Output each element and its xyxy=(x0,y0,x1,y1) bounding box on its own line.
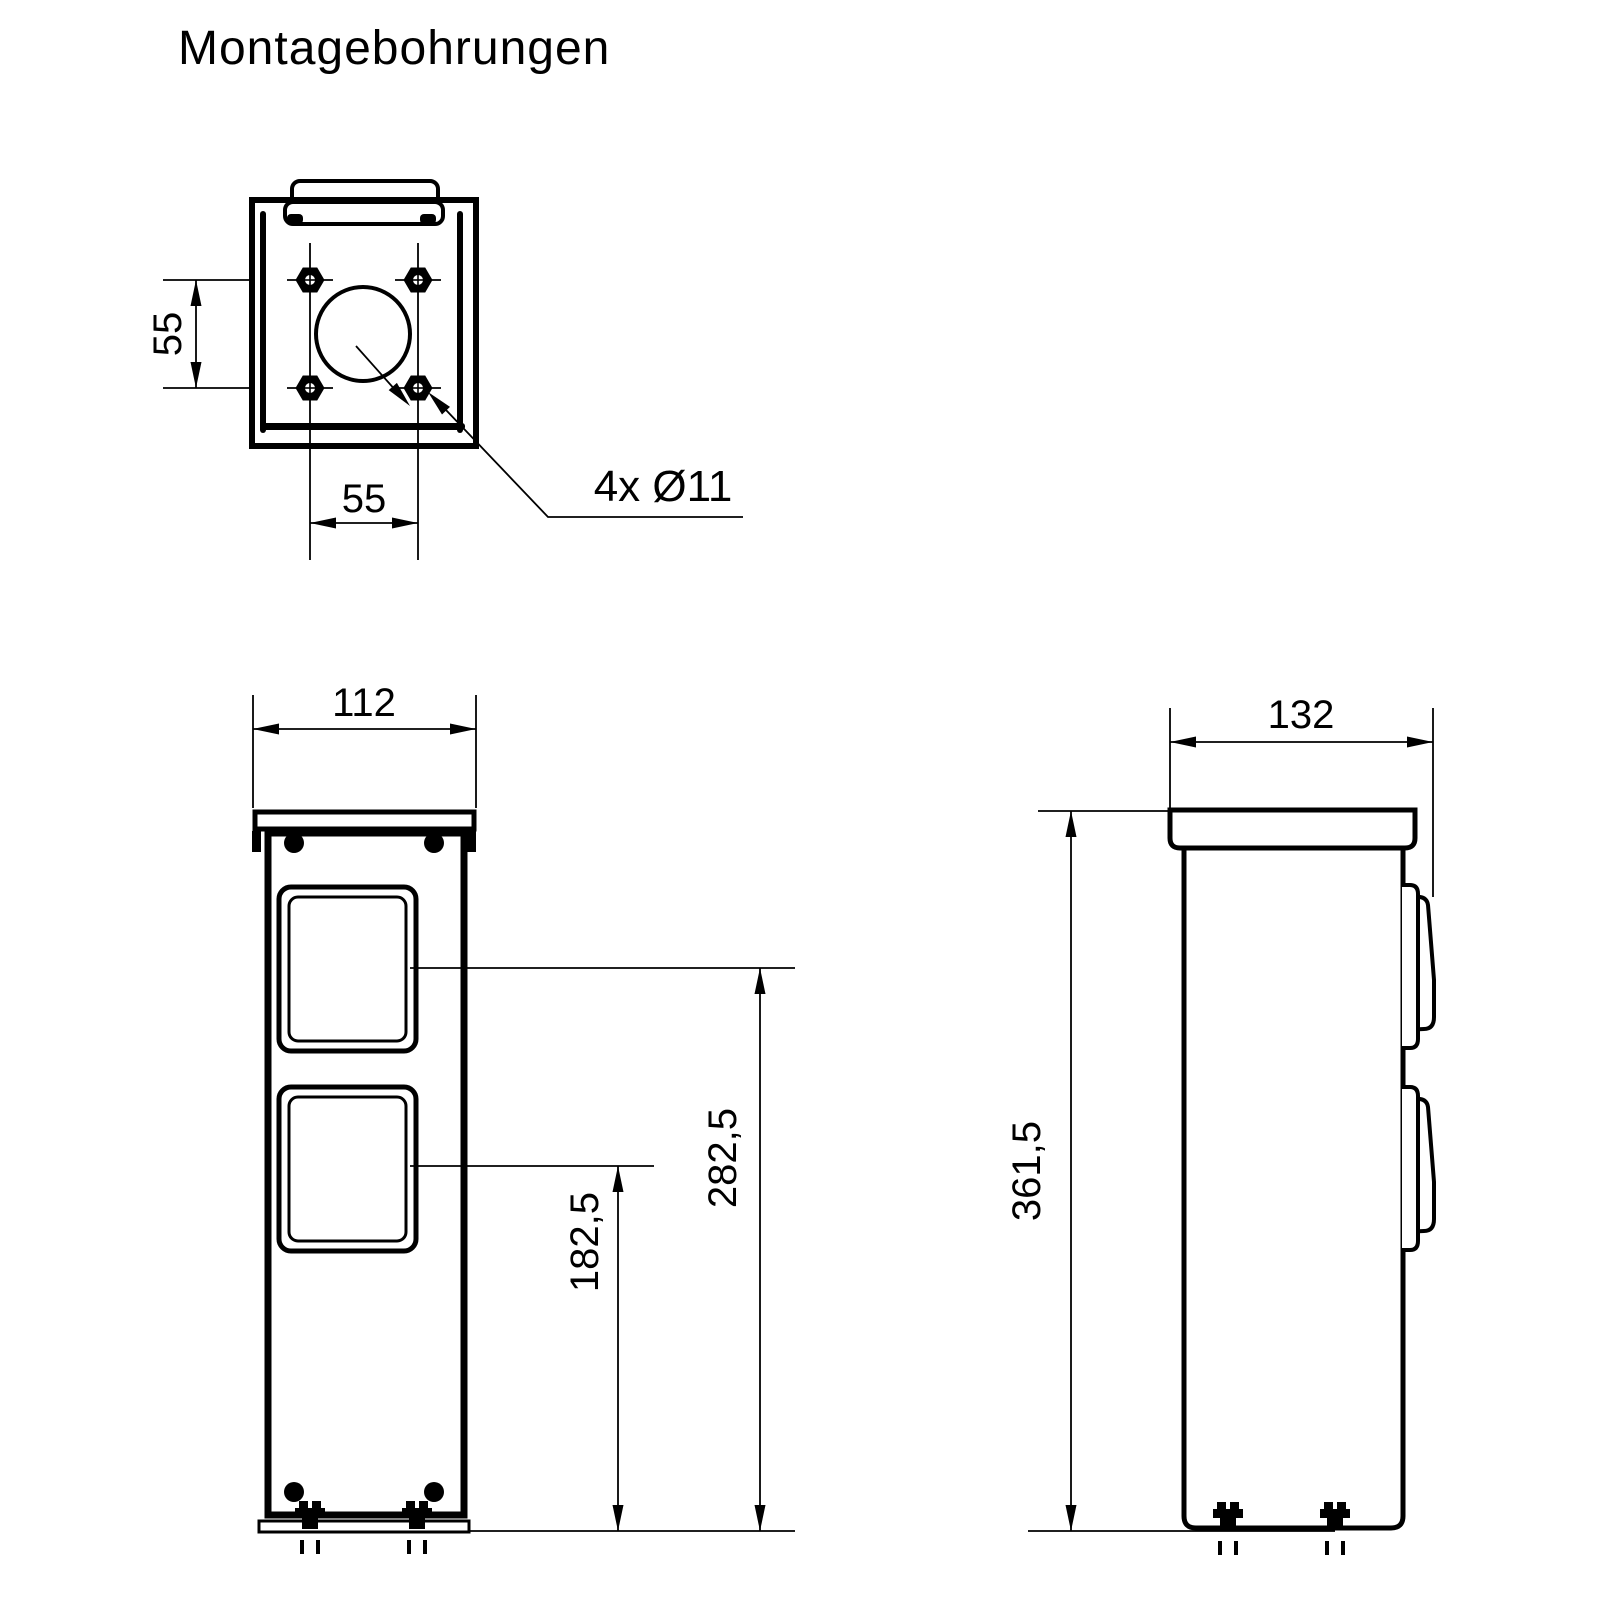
socket-lid xyxy=(289,1097,406,1241)
dimension-lower-socket-height: 182,5 xyxy=(563,1166,624,1531)
cable-hole xyxy=(316,287,410,381)
arrowhead-down xyxy=(1066,1505,1077,1531)
socket-cover-lower xyxy=(1402,1087,1434,1250)
socket-lid xyxy=(289,897,406,1041)
screw-head xyxy=(284,833,304,853)
inner-wall-left xyxy=(260,211,266,433)
socket-cover-upper xyxy=(1402,885,1434,1048)
arrowhead-left xyxy=(1170,737,1196,748)
dimension-text: 112 xyxy=(332,681,396,725)
arrowhead-down xyxy=(613,1505,624,1531)
inner-wall-right xyxy=(457,211,463,433)
screw-head xyxy=(424,833,444,853)
cover-flap xyxy=(1402,1087,1418,1250)
arrowhead-right xyxy=(1407,737,1433,748)
cap-flange-left xyxy=(252,831,261,852)
dimension-hole-spacing-vertical: 55 xyxy=(146,280,252,388)
dimension-hole-spacing-horizontal: 55 xyxy=(310,477,418,529)
pillar-cap-front xyxy=(255,812,474,829)
dimension-upper-socket-height: 282,5 xyxy=(701,968,766,1531)
drawing-title: Montagebohrungen xyxy=(178,22,610,75)
arrowhead-up xyxy=(1066,811,1077,837)
dimension-text: 361,5 xyxy=(1005,1121,1049,1221)
arrowhead-down xyxy=(191,362,202,388)
pillar-cap-side xyxy=(1170,810,1415,848)
screw-head xyxy=(284,1482,304,1502)
arrowhead-right xyxy=(392,518,418,529)
arrowhead-right xyxy=(450,724,476,735)
gasket-corner-left xyxy=(287,214,303,224)
hole-callout-text: 4x Ø11 xyxy=(594,462,733,511)
top-view: 55 55 4x Ø11 xyxy=(146,181,743,560)
dimension-text: 182,5 xyxy=(563,1192,607,1292)
cap-step-outline xyxy=(285,202,443,224)
arrowhead-left xyxy=(253,724,279,735)
side-view: 132 361,5 xyxy=(1005,693,1434,1555)
front-view: 112 282,5 182,5 xyxy=(252,681,795,1554)
socket-upper xyxy=(279,887,416,1051)
gasket-corner-right xyxy=(420,214,436,224)
arrowhead-up xyxy=(755,968,766,994)
arrowhead-up xyxy=(613,1166,624,1192)
drawing-svg: Montagebohrungen xyxy=(0,0,1600,1600)
base-plate-front xyxy=(259,1521,469,1532)
dimension-width-front: 112 xyxy=(253,681,476,808)
arrowhead-down xyxy=(755,1505,766,1531)
dimension-text: 282,5 xyxy=(701,1108,745,1208)
screw-head xyxy=(424,1482,444,1502)
dimension-text: 55 xyxy=(146,312,190,357)
inner-wall-bottom xyxy=(260,423,465,430)
dimension-text: 132 xyxy=(1268,693,1335,737)
pillar-body-side xyxy=(1184,848,1403,1528)
socket-lower xyxy=(279,1087,416,1251)
technical-drawing-page: Montagebohrungen xyxy=(0,0,1600,1600)
cover-flap xyxy=(1402,885,1418,1048)
arrowhead-up xyxy=(191,280,202,306)
dimension-text: 55 xyxy=(342,477,387,521)
cap-flange-right xyxy=(467,831,476,852)
arrowhead-left xyxy=(310,518,336,529)
